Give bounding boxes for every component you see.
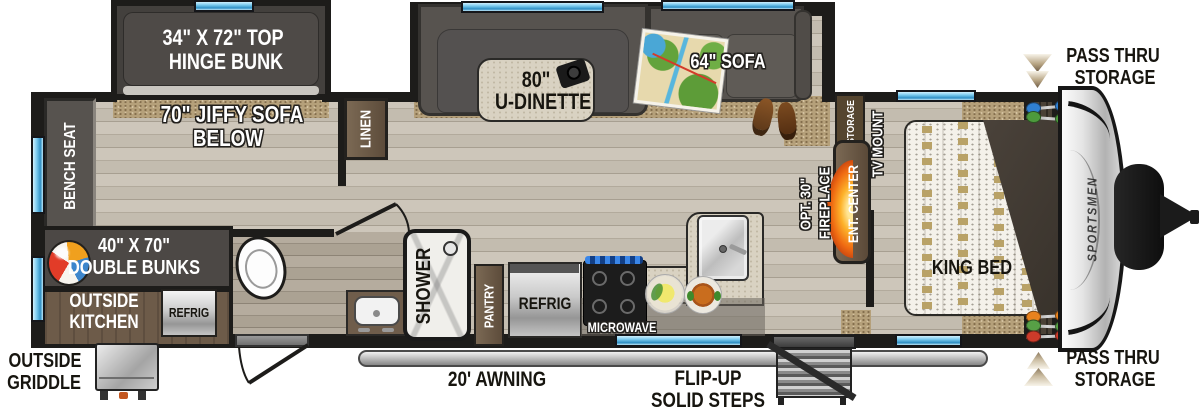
sofa-window	[661, 0, 795, 11]
griddle-foot-right	[138, 391, 146, 400]
steps-label-line1: FLIP-UP	[642, 368, 773, 390]
bath-handle-right	[382, 328, 394, 332]
cap-swoosh-bottom	[1064, 295, 1114, 335]
tv-mount-label: TV MOUNT	[871, 111, 886, 178]
boot-left	[750, 96, 777, 137]
kitchen-sink-icon	[697, 215, 749, 281]
refrig-label: REFRIG	[515, 295, 576, 313]
outside-refrig-label: REFRIG	[166, 306, 212, 320]
sink-faucet	[729, 244, 747, 256]
pass-thru-bottom-arrow-2	[1024, 368, 1053, 386]
pass-thru-top-arrow-2	[1026, 71, 1049, 88]
double-bunks-label-line1: 40" X 70"	[60, 236, 208, 257]
pass-thru-top-label-line1: PASS THRU	[1056, 46, 1171, 67]
storage-label: STORAGE	[846, 100, 857, 144]
bath-handle-left	[358, 328, 370, 332]
outside-griddle-icon	[95, 343, 159, 391]
turkey-dish-icon	[684, 276, 722, 314]
shower-head-icon	[443, 241, 458, 256]
entry-door-swing	[249, 345, 308, 383]
steps-foot-left	[778, 397, 784, 405]
corn-leaf	[649, 282, 665, 303]
toilet-seat-line	[241, 246, 282, 293]
entry-door-arc	[239, 347, 249, 383]
entry-door	[235, 334, 309, 347]
linen-label: LINEN	[359, 110, 374, 148]
sofa-label: 64" SOFA	[662, 52, 793, 73]
rear-window-lower	[31, 256, 45, 322]
propane-tanks-icon	[1114, 164, 1164, 270]
bedroom-top-window	[896, 90, 976, 102]
bunk-window	[194, 0, 254, 12]
pantry-label: PANTRY	[483, 284, 496, 328]
outside-kitchen-label-line1: OUTSIDE	[63, 292, 145, 312]
outside-griddle-label-line1: OUTSIDE	[0, 351, 90, 372]
awning-bar	[358, 350, 988, 367]
outside-griddle-label-line2: GRIDDLE	[0, 373, 89, 394]
hitch-jack-icon	[1190, 210, 1199, 224]
stove-grate-blue	[585, 256, 643, 264]
ent-center-label: ENT. CENTER	[846, 165, 860, 243]
stove-burner	[620, 271, 635, 286]
bunk-label-line2: HINGE BUNK	[144, 50, 308, 73]
rear-window-upper	[31, 136, 45, 214]
garnish-right	[714, 291, 721, 301]
paddle-blade	[1026, 110, 1042, 123]
rv-floorplan-diagram: BENCH SEAT 34" X 72" TOP HINGE BUNK 70" …	[0, 0, 1199, 416]
bath-vanity	[346, 290, 408, 336]
sink-drain	[719, 245, 727, 253]
fireplace-label-line1: OPT. 30"	[799, 178, 814, 230]
carpet-bedroom-entry	[841, 310, 871, 334]
garnish-left	[687, 291, 694, 301]
griddle-foot-left	[100, 391, 108, 400]
pass-thru-top-label-line2: STORAGE	[1058, 68, 1173, 89]
pass-thru-bottom-arrow-1	[1027, 352, 1050, 369]
wall-slide-step-right	[822, 2, 835, 102]
stove-burner	[620, 299, 635, 314]
griddle-seam	[99, 377, 154, 379]
jiffy-sofa-label-line1: 70" JIFFY SOFA	[150, 102, 314, 126]
steps-label-line2: SOLID STEPS	[642, 390, 773, 412]
awning-label: 20' AWNING	[431, 369, 562, 391]
wall-bath-top	[226, 229, 334, 237]
dinette-label-line2: U-DINETTE	[495, 90, 577, 113]
stove-burner	[592, 271, 607, 286]
steps-top-slab	[772, 335, 856, 349]
stove-burner	[592, 299, 607, 314]
brand-logo: SPORTSMEN	[1086, 176, 1099, 261]
pass-thru-bottom-label-line2: STORAGE	[1058, 370, 1173, 391]
cap-swoosh-top	[1064, 101, 1114, 141]
paddle-blade	[1026, 330, 1041, 343]
kitchen-window	[615, 334, 742, 347]
bench-seat-label: BENCH SEAT	[63, 122, 79, 209]
steps-foot-right	[840, 397, 846, 405]
boot-right	[776, 101, 798, 141]
bath-faucet	[373, 310, 380, 317]
refrig-top-trim	[510, 264, 579, 273]
king-bed-label: KING BED	[923, 258, 1021, 279]
double-bunks-label-line2: DOUBLE BUNKS	[60, 258, 208, 279]
bedroom-bottom-window	[895, 334, 962, 347]
pass-thru-top-arrow-1	[1023, 54, 1052, 72]
fireplace-label-line2: FIREPLACE	[818, 167, 833, 239]
flip-up-steps-icon	[772, 335, 856, 405]
pass-thru-bottom-label-line1: PASS THRU	[1056, 348, 1171, 369]
griddle-knob	[119, 392, 128, 399]
boots-icon	[752, 96, 804, 142]
outside-kitchen-label-line2: KITCHEN	[63, 313, 145, 333]
bunk-bumper	[123, 86, 319, 95]
bunk-label-line1: 34" X 72" TOP	[141, 26, 305, 49]
sofa-armrest	[794, 10, 812, 100]
shower-label: SHOWER	[414, 248, 434, 325]
stove-icon	[583, 260, 647, 326]
corn-dish-icon	[645, 274, 685, 314]
dinette-label-line1: 80"	[495, 68, 577, 91]
jiffy-sofa-label-line2: BELOW	[146, 126, 310, 150]
dinette-window	[461, 1, 604, 13]
